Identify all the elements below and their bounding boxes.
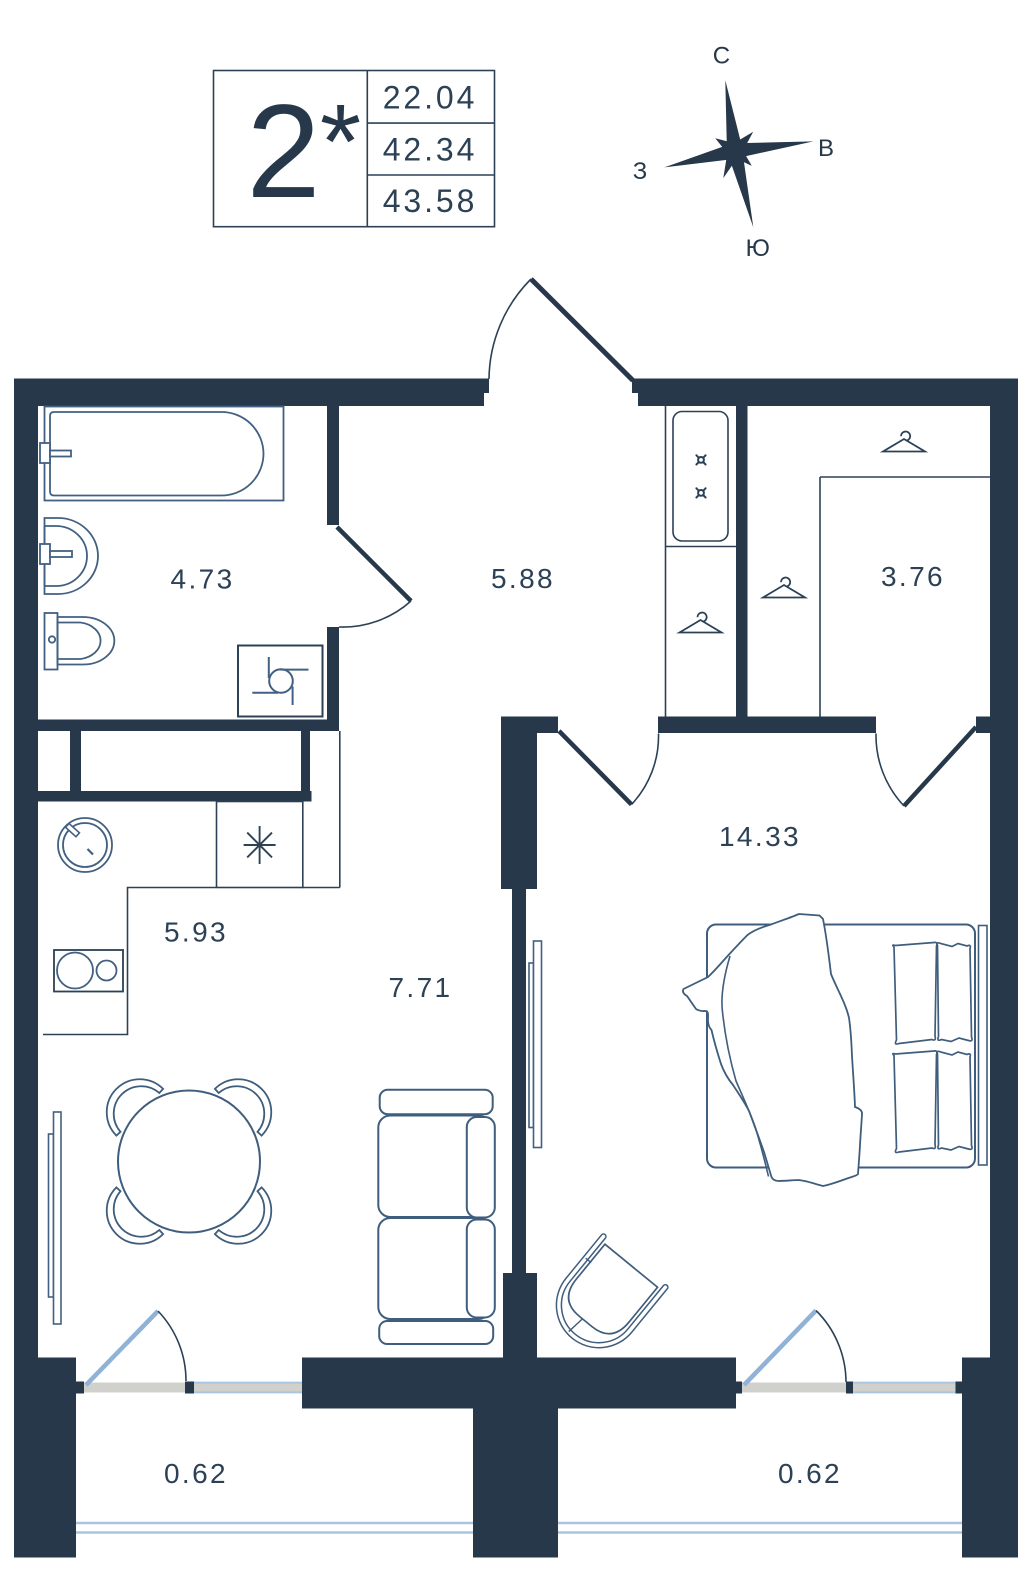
svg-text:0.62: 0.62	[778, 1458, 842, 1489]
svg-text:2: 2	[247, 78, 321, 226]
svg-text:Ю: Ю	[746, 235, 770, 262]
svg-text:3.76: 3.76	[881, 561, 945, 592]
svg-text:З: З	[633, 158, 648, 185]
svg-text:В: В	[818, 135, 834, 162]
svg-text:22.04: 22.04	[383, 80, 478, 116]
svg-text:С: С	[713, 43, 730, 70]
svg-text:7.71: 7.71	[388, 972, 452, 1003]
svg-text:43.58: 43.58	[383, 183, 478, 219]
svg-text:5.93: 5.93	[164, 916, 228, 947]
svg-text:5.88: 5.88	[491, 563, 555, 594]
svg-text:0.62: 0.62	[164, 1458, 228, 1489]
svg-text:*: *	[320, 83, 361, 201]
svg-text:4.73: 4.73	[171, 563, 235, 594]
svg-text:14.33: 14.33	[719, 821, 801, 852]
svg-text:42.34: 42.34	[383, 131, 478, 167]
